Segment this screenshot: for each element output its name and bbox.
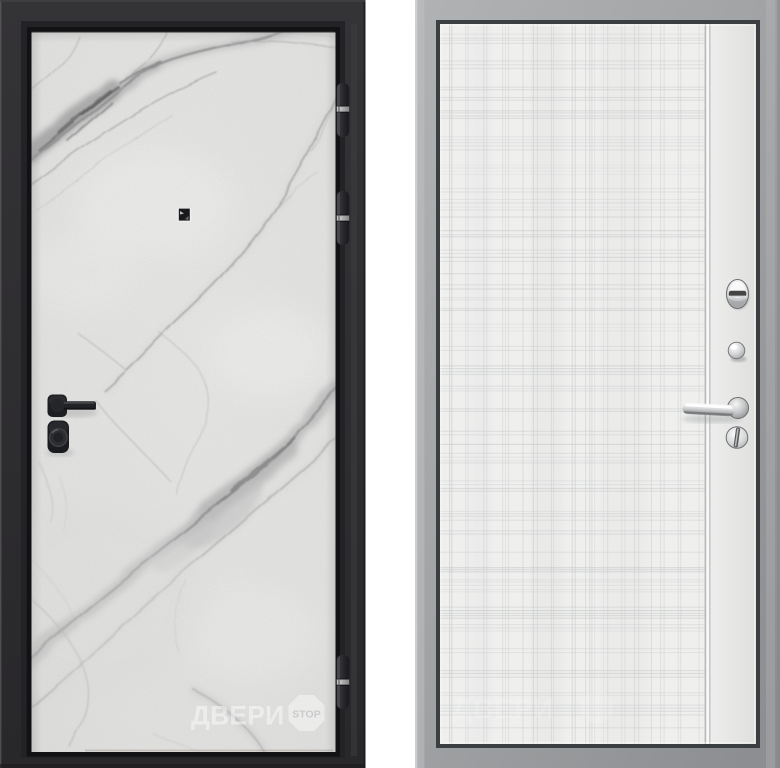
svg-text:STOP: STOP: [292, 709, 320, 721]
svg-text:ДВЕРИ: ДВЕРИ: [191, 701, 284, 731]
svg-text:ДВЕРИ: ДВЕРИ: [452, 693, 555, 724]
